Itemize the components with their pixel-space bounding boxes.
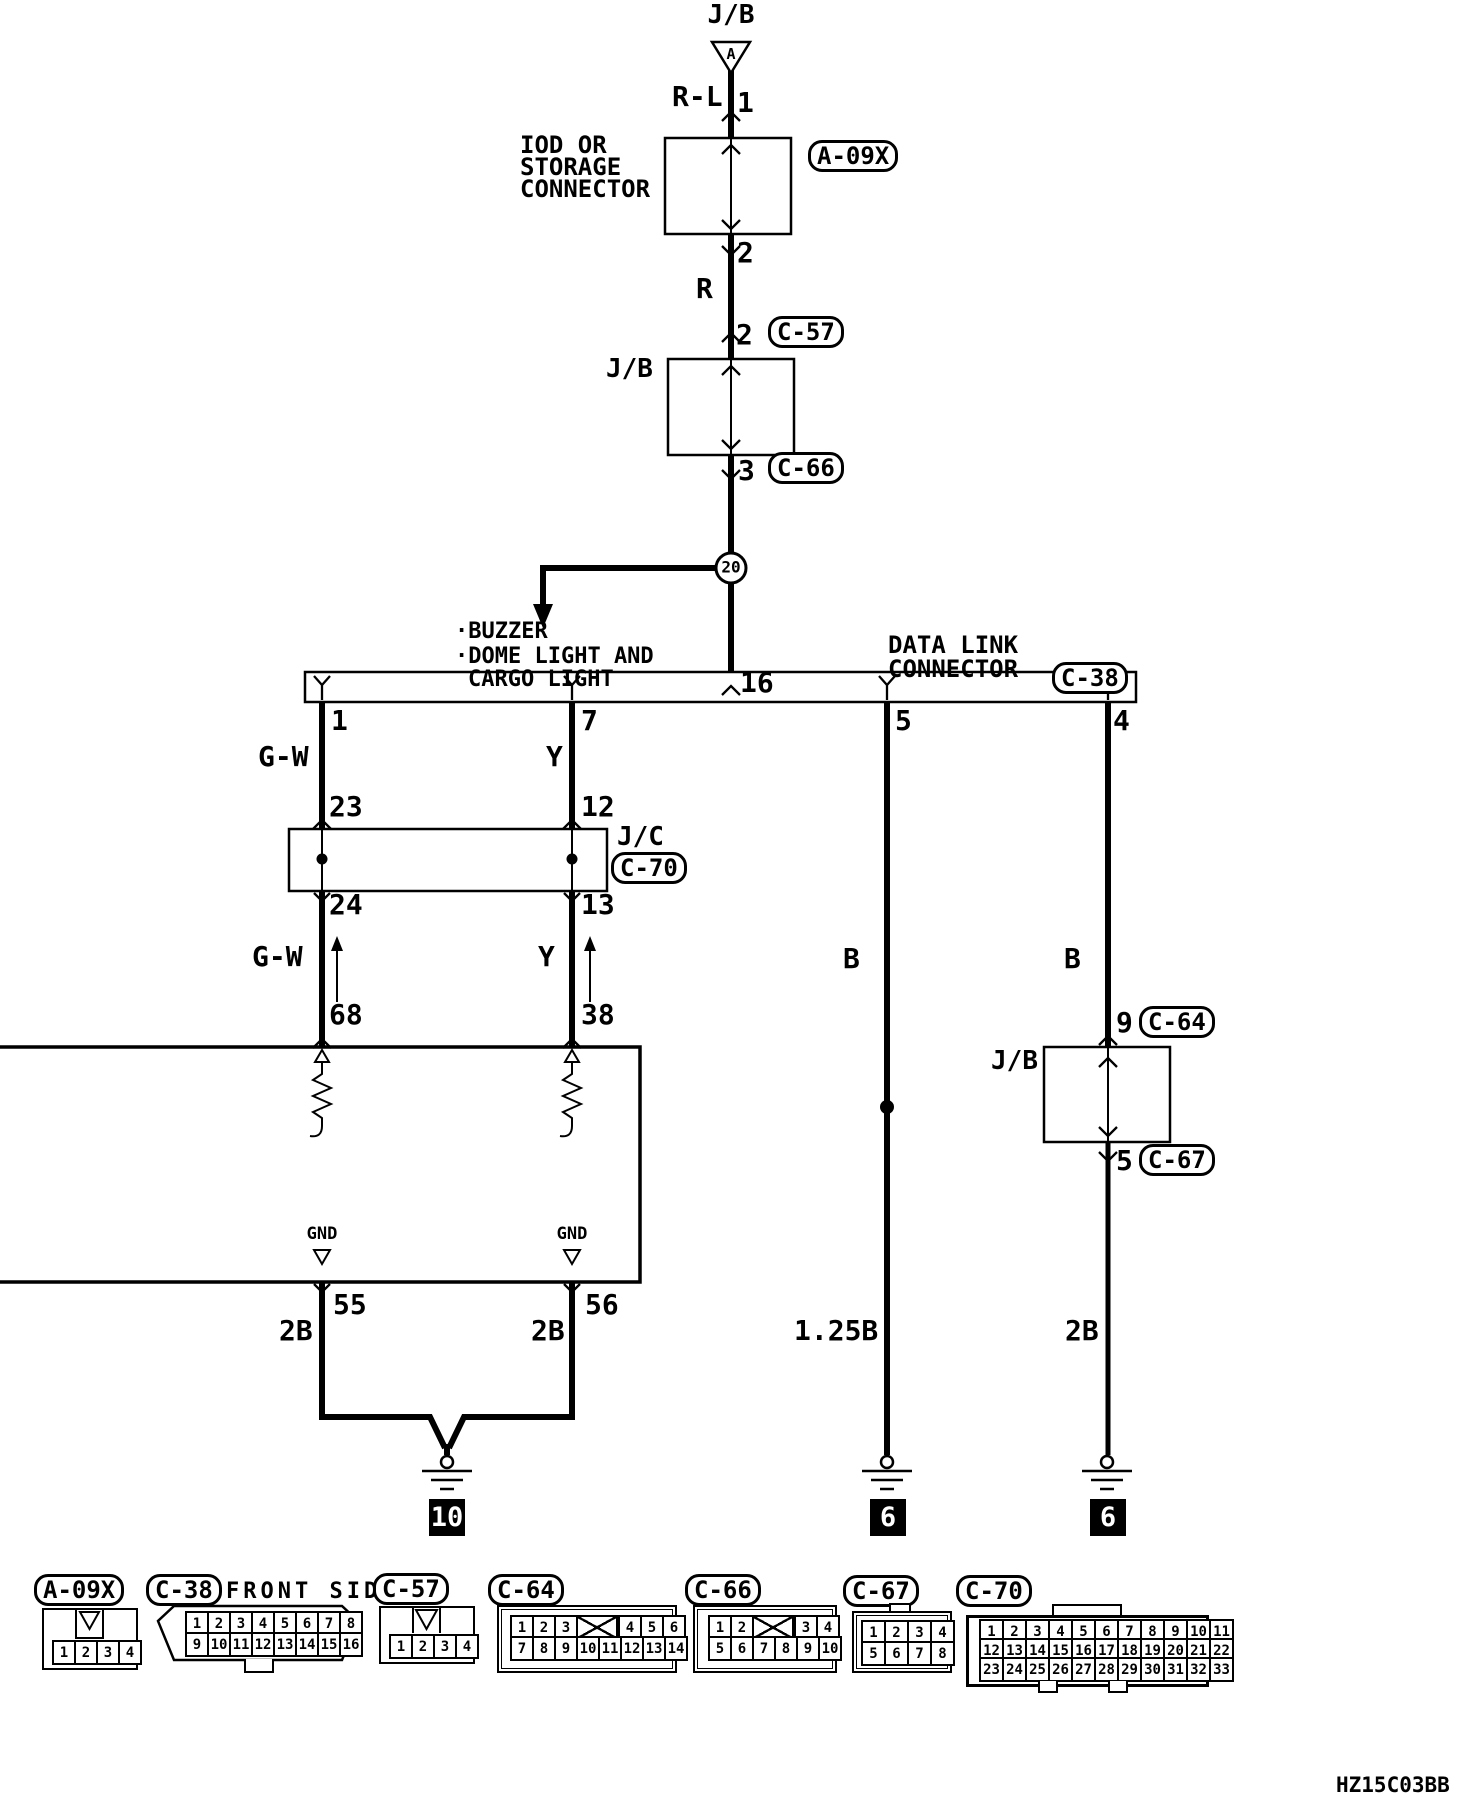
pin-cell: 27 — [1071, 1657, 1096, 1682]
wire-size-2b-right: 2B — [1065, 1316, 1099, 1345]
pin-cell: 13 — [273, 1632, 297, 1657]
dlc-pin-4: 4 — [1113, 706, 1130, 735]
connector-code-c38: C-38 — [1052, 662, 1128, 694]
pin-number-24: 24 — [329, 890, 363, 919]
ground-tag-6-right-number: 6 — [1100, 1502, 1116, 1533]
c64-pin-row-2: 7891011121314 — [510, 1636, 688, 1661]
branch-target-line3: CARGO LIGHT — [468, 668, 614, 691]
wire-color-gw-lower: G-W — [252, 942, 303, 971]
gnd-triangles — [314, 1250, 580, 1264]
junction-number: 20 — [721, 560, 740, 577]
pin-cell: 10 — [818, 1636, 842, 1661]
c66-pin-row-2: 5678910 — [708, 1636, 842, 1661]
wire-color-rl: R-L — [672, 82, 723, 111]
pin-cell: 15 — [317, 1632, 341, 1657]
connector-code-c66: C-66 — [768, 452, 844, 484]
pin-cell: 13 — [642, 1636, 666, 1661]
pin-cell: 23 — [979, 1657, 1004, 1682]
triangle-letter: A — [726, 47, 735, 63]
pin-number-13: 13 — [581, 890, 615, 919]
pin-number-9: 9 — [1116, 1008, 1133, 1037]
pin-cell: 14 — [295, 1632, 319, 1657]
connector-code-c57: C-57 — [768, 316, 844, 348]
c57-key-triangle-icon — [414, 1608, 439, 1632]
pin-cell: 26 — [1048, 1657, 1073, 1682]
table-code-c38: C-38 — [146, 1574, 222, 1606]
wiring-diagram-page: J/B A R-L 1 IOD OR STORAGE CONNECTOR A-0… — [0, 0, 1472, 1800]
pin-cell: 10 — [207, 1632, 231, 1657]
ground-tag-6-mid-number: 6 — [880, 1502, 896, 1533]
wire-size-2b-left: 2B — [279, 1316, 313, 1345]
c70-bottom-tab-right — [1108, 1681, 1128, 1693]
table-code-c70: C-70 — [956, 1575, 1032, 1607]
iod-connector-box — [665, 138, 791, 234]
gnd-label-right: GND — [557, 1226, 588, 1244]
pin-cell: 11 — [229, 1632, 253, 1657]
pin-cell: 3 — [96, 1640, 120, 1665]
resistors — [310, 1050, 581, 1136]
pin-cell: 1 — [52, 1640, 76, 1665]
pin-number-5-right: 5 — [1116, 1146, 1133, 1175]
wire-color-y-lower: Y — [538, 942, 555, 971]
pin-cell: 6 — [884, 1641, 909, 1666]
pin-cell: 29 — [1117, 1657, 1142, 1682]
pin-cell: 8 — [930, 1641, 955, 1666]
pin-cell: 32 — [1186, 1657, 1211, 1682]
wire-size-2b-mid: 2B — [531, 1316, 565, 1345]
pin-number-38: 38 — [581, 1000, 615, 1029]
dlc-pin-5: 5 — [895, 706, 912, 735]
c64-body: 123 456 7891011121314 — [497, 1605, 677, 1673]
pin-cell: 10 — [576, 1636, 600, 1661]
pin-cell: 25 — [1025, 1657, 1050, 1682]
c66-inner-outline: 12 34 5678910 — [697, 1609, 833, 1669]
pin-number-23: 23 — [329, 792, 363, 821]
table-code-c64: C-64 — [488, 1574, 564, 1606]
pin-cell: 28 — [1094, 1657, 1119, 1682]
a09x-pin-row: 1234 — [52, 1640, 142, 1665]
pin-cell: 11 — [598, 1636, 622, 1661]
c70-pin-row-3: 2324252627282930313233 — [979, 1657, 1234, 1682]
wire-size-125b: 1.25B — [794, 1316, 878, 1345]
table-code-c66: C-66 — [685, 1574, 761, 1606]
wire-color-y-upper: Y — [546, 742, 563, 771]
table-code-a09x: A-09X — [34, 1574, 124, 1606]
jb-right-label: J/B — [988, 1048, 1038, 1075]
pin-cell: 7 — [752, 1636, 776, 1661]
pin-number-2-c57: 2 — [736, 320, 753, 349]
branch-target-line1: ·BUZZER — [455, 620, 548, 643]
ground-point-tag-6-right: 6 — [1090, 1499, 1126, 1536]
pin-number-16: 16 — [740, 668, 774, 697]
pin-cell: 5 — [708, 1636, 732, 1661]
pin-cell: 8 — [532, 1636, 556, 1661]
connector-code-a09x: A-09X — [808, 140, 898, 172]
a09x-body: 1234 — [42, 1608, 138, 1670]
jb-top-label: J/B — [708, 2, 755, 29]
pin-cell: 8 — [774, 1636, 798, 1661]
dlc-name-line1: DATA LINK — [888, 634, 1018, 656]
pin-cell: 9 — [554, 1636, 578, 1661]
table-code-c57: C-57 — [373, 1573, 449, 1605]
pin-number-3: 3 — [738, 456, 755, 485]
wire-color-gw-upper: G-W — [258, 742, 309, 771]
connector-code-c64: C-64 — [1139, 1006, 1215, 1038]
jb-mid-label: J/B — [606, 356, 653, 383]
c66-body: 12 34 5678910 — [693, 1605, 837, 1673]
c57-keying-notch — [412, 1608, 441, 1633]
terminal-chevrons — [313, 112, 1117, 1299]
branch-target-line2: ·DOME LIGHT AND — [455, 645, 654, 668]
pin-cell: 33 — [1209, 1657, 1234, 1682]
dlc-pin-7: 7 — [581, 706, 598, 735]
pin-cell: 9 — [796, 1636, 820, 1661]
ground-tag-10-number: 10 — [431, 1502, 464, 1533]
pin-number-56: 56 — [585, 1290, 619, 1319]
c57-body: 1234 — [379, 1606, 475, 1664]
direction-arrows — [331, 936, 596, 1002]
iod-name-line3: CONNECTOR — [520, 178, 650, 200]
pin-number-1: 1 — [737, 88, 754, 117]
pin-cell: 2 — [74, 1640, 98, 1665]
connector-code-c67: C-67 — [1139, 1144, 1215, 1176]
pin-cell: 4 — [118, 1640, 142, 1665]
pin-cell: 16 — [339, 1632, 363, 1657]
pin-cell: 4 — [455, 1634, 479, 1659]
pin-cell: 7 — [510, 1636, 534, 1661]
pin-cell: 12 — [620, 1636, 644, 1661]
pin-cell: 2 — [411, 1634, 435, 1659]
wire-color-b-mid: B — [843, 944, 860, 973]
jc-box — [289, 829, 607, 891]
dlc-pin-1: 1 — [331, 706, 348, 735]
pin-cell: 6 — [730, 1636, 754, 1661]
pin-number-68: 68 — [329, 1000, 363, 1029]
gnd-label-left: GND — [307, 1226, 338, 1244]
pin-cell: 7 — [907, 1641, 932, 1666]
pin-cell: 31 — [1163, 1657, 1188, 1682]
c38-bottom-tab — [244, 1659, 274, 1673]
a09x-keying-notch — [75, 1610, 104, 1639]
dlc-name-line2: CONNECTOR — [888, 658, 1018, 680]
thick-wires — [322, 68, 1108, 1455]
c67-pin-row-2: 5678 — [861, 1641, 955, 1666]
connector-code-c70: C-70 — [611, 852, 687, 884]
c67-inner-outline: 1234 5678 — [856, 1615, 948, 1669]
c67-body: 1234 5678 — [852, 1611, 952, 1673]
pin-cell: 1 — [389, 1634, 413, 1659]
c57-pin-row: 1234 — [389, 1634, 479, 1659]
pin-cell: 24 — [1002, 1657, 1027, 1682]
pin-cell: 12 — [251, 1632, 275, 1657]
pin-cell: 9 — [185, 1632, 209, 1657]
pin-number-12: 12 — [581, 792, 615, 821]
ground-point-tag-10: 10 — [429, 1499, 465, 1536]
pin-cell: 14 — [664, 1636, 688, 1661]
wire-color-b-right: B — [1064, 944, 1081, 973]
ground-point-tag-6-mid: 6 — [870, 1499, 906, 1536]
a09x-key-triangle-icon — [77, 1610, 102, 1632]
wire-color-r: R — [696, 274, 713, 303]
c38-pin-row-2: 910111213141516 — [185, 1632, 363, 1657]
pin-cell: 3 — [433, 1634, 457, 1659]
c70-body: 1234567891011 1213141516171819202122 232… — [966, 1615, 1209, 1687]
pin-number-2: 2 — [737, 238, 754, 267]
pin-cell: 30 — [1140, 1657, 1165, 1682]
schematic-lines — [0, 0, 1472, 1800]
jc-label: J/C — [617, 824, 664, 851]
c70-bottom-tab-left — [1038, 1681, 1058, 1693]
c64-inner-outline: 123 456 7891011121314 — [501, 1609, 673, 1669]
pin-number-55: 55 — [333, 1290, 367, 1319]
diagram-code: HZ15C03BB — [1336, 1774, 1450, 1796]
ground-symbols — [422, 1456, 1132, 1489]
pin-cell: 5 — [861, 1641, 886, 1666]
